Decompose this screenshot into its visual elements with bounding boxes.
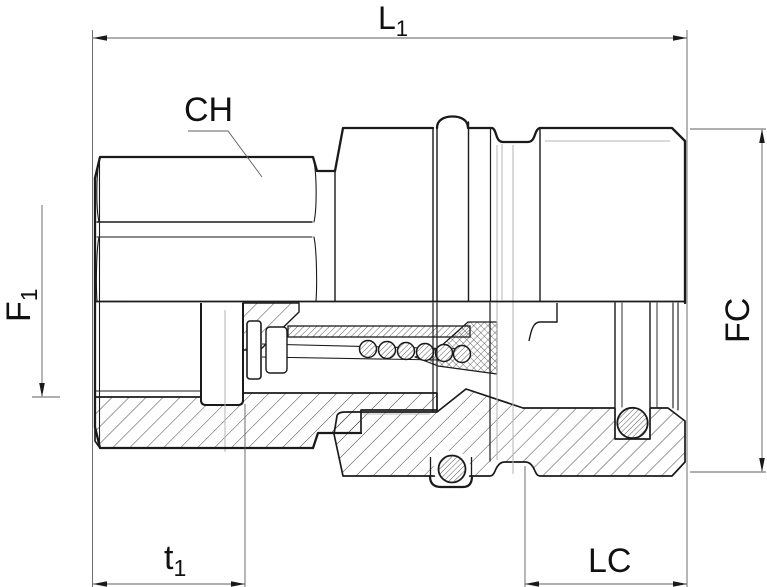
ch-label: CH — [184, 91, 233, 129]
arrowhead-t1-right — [231, 581, 245, 587]
thread-undercut-slot — [201, 303, 243, 405]
t1-label: t1 — [164, 539, 186, 581]
arrowhead-lc-left — [525, 581, 539, 587]
hex-corner-arcs — [96, 157, 316, 301]
top-silhouette — [95, 117, 685, 304]
oring-seal — [617, 408, 647, 438]
arrowhead-fc-down — [759, 458, 765, 472]
coupling-cross-section-drawing: L1 CH F1 FC t1 LC — [0, 0, 767, 587]
l1-label: L1 — [378, 0, 408, 41]
section-hatching — [95, 303, 685, 476]
fc-label: FC — [719, 298, 757, 343]
dimensions — [32, 30, 766, 587]
coupling-drawing-canvas: L1 CH F1 FC t1 LC — [0, 0, 767, 587]
arrowhead-t1-left — [93, 581, 107, 587]
arrowheads — [39, 35, 765, 587]
arrowhead-l1-left — [93, 35, 107, 41]
arrowhead-f1-down — [39, 383, 45, 397]
dimension-labels: L1 CH F1 FC t1 LC — [0, 0, 757, 581]
ch-leader-line — [188, 131, 262, 177]
guide-retainer — [266, 327, 287, 373]
guide-end-cap — [247, 321, 261, 379]
cage-shoulder-step — [529, 303, 557, 341]
arrowhead-fc-up — [759, 129, 765, 143]
valve-guide-tube-hatch — [288, 326, 470, 337]
lc-label: LC — [588, 542, 631, 580]
poppet-stem-bottom — [262, 357, 440, 360]
arrowhead-lc-right — [673, 581, 687, 587]
f1-label: F1 — [0, 288, 42, 322]
arrowhead-l1-right — [673, 35, 687, 41]
